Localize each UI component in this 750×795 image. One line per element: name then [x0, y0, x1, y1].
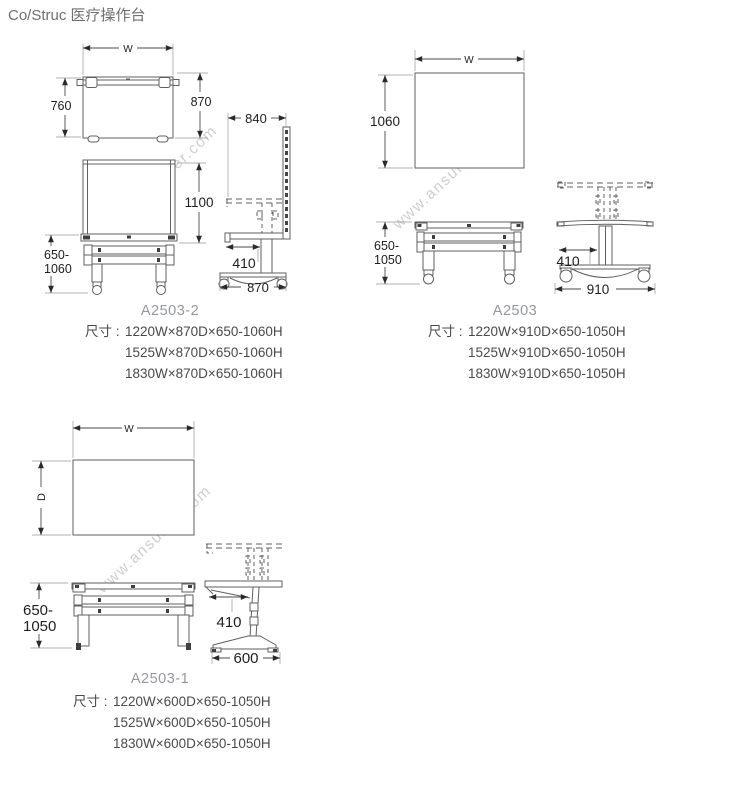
- size-list: 尺寸 :1220W×870D×650-1060H 1525W×870D×650-…: [85, 321, 283, 384]
- size-value: 1525W×910D×650-1050H: [468, 345, 626, 360]
- a2503-1-drawing: W D 650- 1050: [10, 415, 310, 673]
- size-value: 1830W×910D×650-1050H: [468, 366, 626, 381]
- dim-label-reach: 410: [216, 614, 241, 631]
- dim-label-height-range-2: 1050: [23, 618, 56, 635]
- dim-reach: 410: [226, 247, 260, 271]
- dim-label-height-range-1: 650-: [23, 602, 53, 619]
- dim-label-width: W: [123, 44, 133, 55]
- dim-label-reach: 410: [232, 255, 256, 271]
- size-prefix: 尺寸 :: [85, 321, 125, 342]
- dim-label-width: W: [464, 55, 474, 66]
- top-view: [415, 73, 524, 168]
- side-view: [205, 544, 282, 652]
- dim-height-range: 650- 1050: [23, 583, 72, 648]
- size-line: 1830W×870D×650-1060H: [85, 363, 283, 384]
- size-line: 1525W×870D×650-1060H: [85, 342, 283, 363]
- dim-label-depth: D: [36, 493, 48, 501]
- dim-label-height-range-2: 1050: [374, 253, 402, 267]
- a2503-2-drawing: W 760 870: [40, 35, 320, 303]
- dim-label-base-depth: 870: [247, 280, 269, 295]
- front-view: [81, 160, 177, 295]
- a2503-drawing: W 1060 650- 1050: [370, 40, 670, 302]
- dim-top-depth: D: [32, 461, 71, 535]
- size-list: 尺寸 :1220W×600D×650-1050H 1525W×600D×650-…: [73, 691, 271, 754]
- size-value: 1525W×870D×650-1060H: [125, 345, 283, 360]
- size-line: 尺寸 :1220W×910D×650-1050H: [428, 321, 626, 342]
- dim-overall-depth: 870: [175, 73, 211, 138]
- size-value: 1220W×910D×650-1050H: [468, 324, 626, 339]
- front-view: [415, 222, 523, 284]
- dim-label-top-depth: 760: [51, 99, 72, 113]
- size-value: 1830W×600D×650-1050H: [113, 736, 271, 751]
- dim-label-top-depth: 1060: [370, 114, 400, 129]
- page-title: Co/Struc 医疗操作台: [8, 4, 146, 25]
- dim-board-height: 1100: [177, 163, 214, 243]
- size-value: 1220W×600D×650-1050H: [113, 694, 271, 709]
- dim-label-base-depth: 600: [233, 650, 258, 667]
- dim-reach: 410: [209, 597, 248, 631]
- dim-label-width: W: [124, 424, 134, 435]
- dim-width: W: [415, 50, 524, 71]
- model-label: A2503-1: [75, 671, 245, 687]
- dim-label-height-range-1: 650-: [374, 239, 399, 253]
- size-line: 尺寸 :1220W×870D×650-1060H: [85, 321, 283, 342]
- dim-label-reach: 410: [556, 253, 580, 269]
- dim-width: W: [73, 421, 194, 458]
- size-list: 尺寸 :1220W×910D×650-1050H 1525W×910D×650-…: [428, 321, 626, 384]
- dim-base-depth: 600: [212, 650, 280, 667]
- size-line: 1830W×600D×650-1050H: [73, 733, 271, 754]
- size-value: 1525W×600D×650-1050H: [113, 715, 271, 730]
- dim-label-board-height: 1100: [184, 195, 213, 210]
- size-line: 1525W×600D×650-1050H: [73, 712, 271, 733]
- dim-height-range: 650- 1060: [44, 235, 88, 293]
- dim-top-depth: 1060: [370, 75, 413, 168]
- size-prefix: 尺寸 :: [428, 321, 468, 342]
- size-value: 1220W×870D×650-1060H: [125, 324, 283, 339]
- model-label: A2503-2: [85, 303, 255, 319]
- dim-width: W: [83, 44, 173, 75]
- dim-label-base-depth: 910: [587, 282, 610, 297]
- dim-base-depth: 870: [220, 280, 286, 295]
- size-value: 1830W×870D×650-1060H: [125, 366, 283, 381]
- top-view: [77, 77, 179, 142]
- front-view: [72, 583, 195, 650]
- dim-top-depth: 760: [51, 78, 81, 137]
- dim-height-range: 650- 1050: [374, 222, 420, 284]
- dim-label-board-width: 840: [245, 111, 267, 126]
- dim-label-height-range-2: 1060: [44, 262, 72, 276]
- dim-base-depth: 910: [555, 282, 655, 297]
- size-line: 尺寸 :1220W×600D×650-1050H: [73, 691, 271, 712]
- dim-label-height-range-1: 650-: [44, 248, 69, 262]
- top-view: [73, 460, 194, 535]
- dim-label-overall-depth: 870: [191, 95, 212, 109]
- size-prefix: 尺寸 :: [73, 691, 113, 712]
- size-line: 1525W×910D×650-1050H: [428, 342, 626, 363]
- model-label: A2503: [430, 303, 600, 319]
- size-line: 1830W×910D×650-1050H: [428, 363, 626, 384]
